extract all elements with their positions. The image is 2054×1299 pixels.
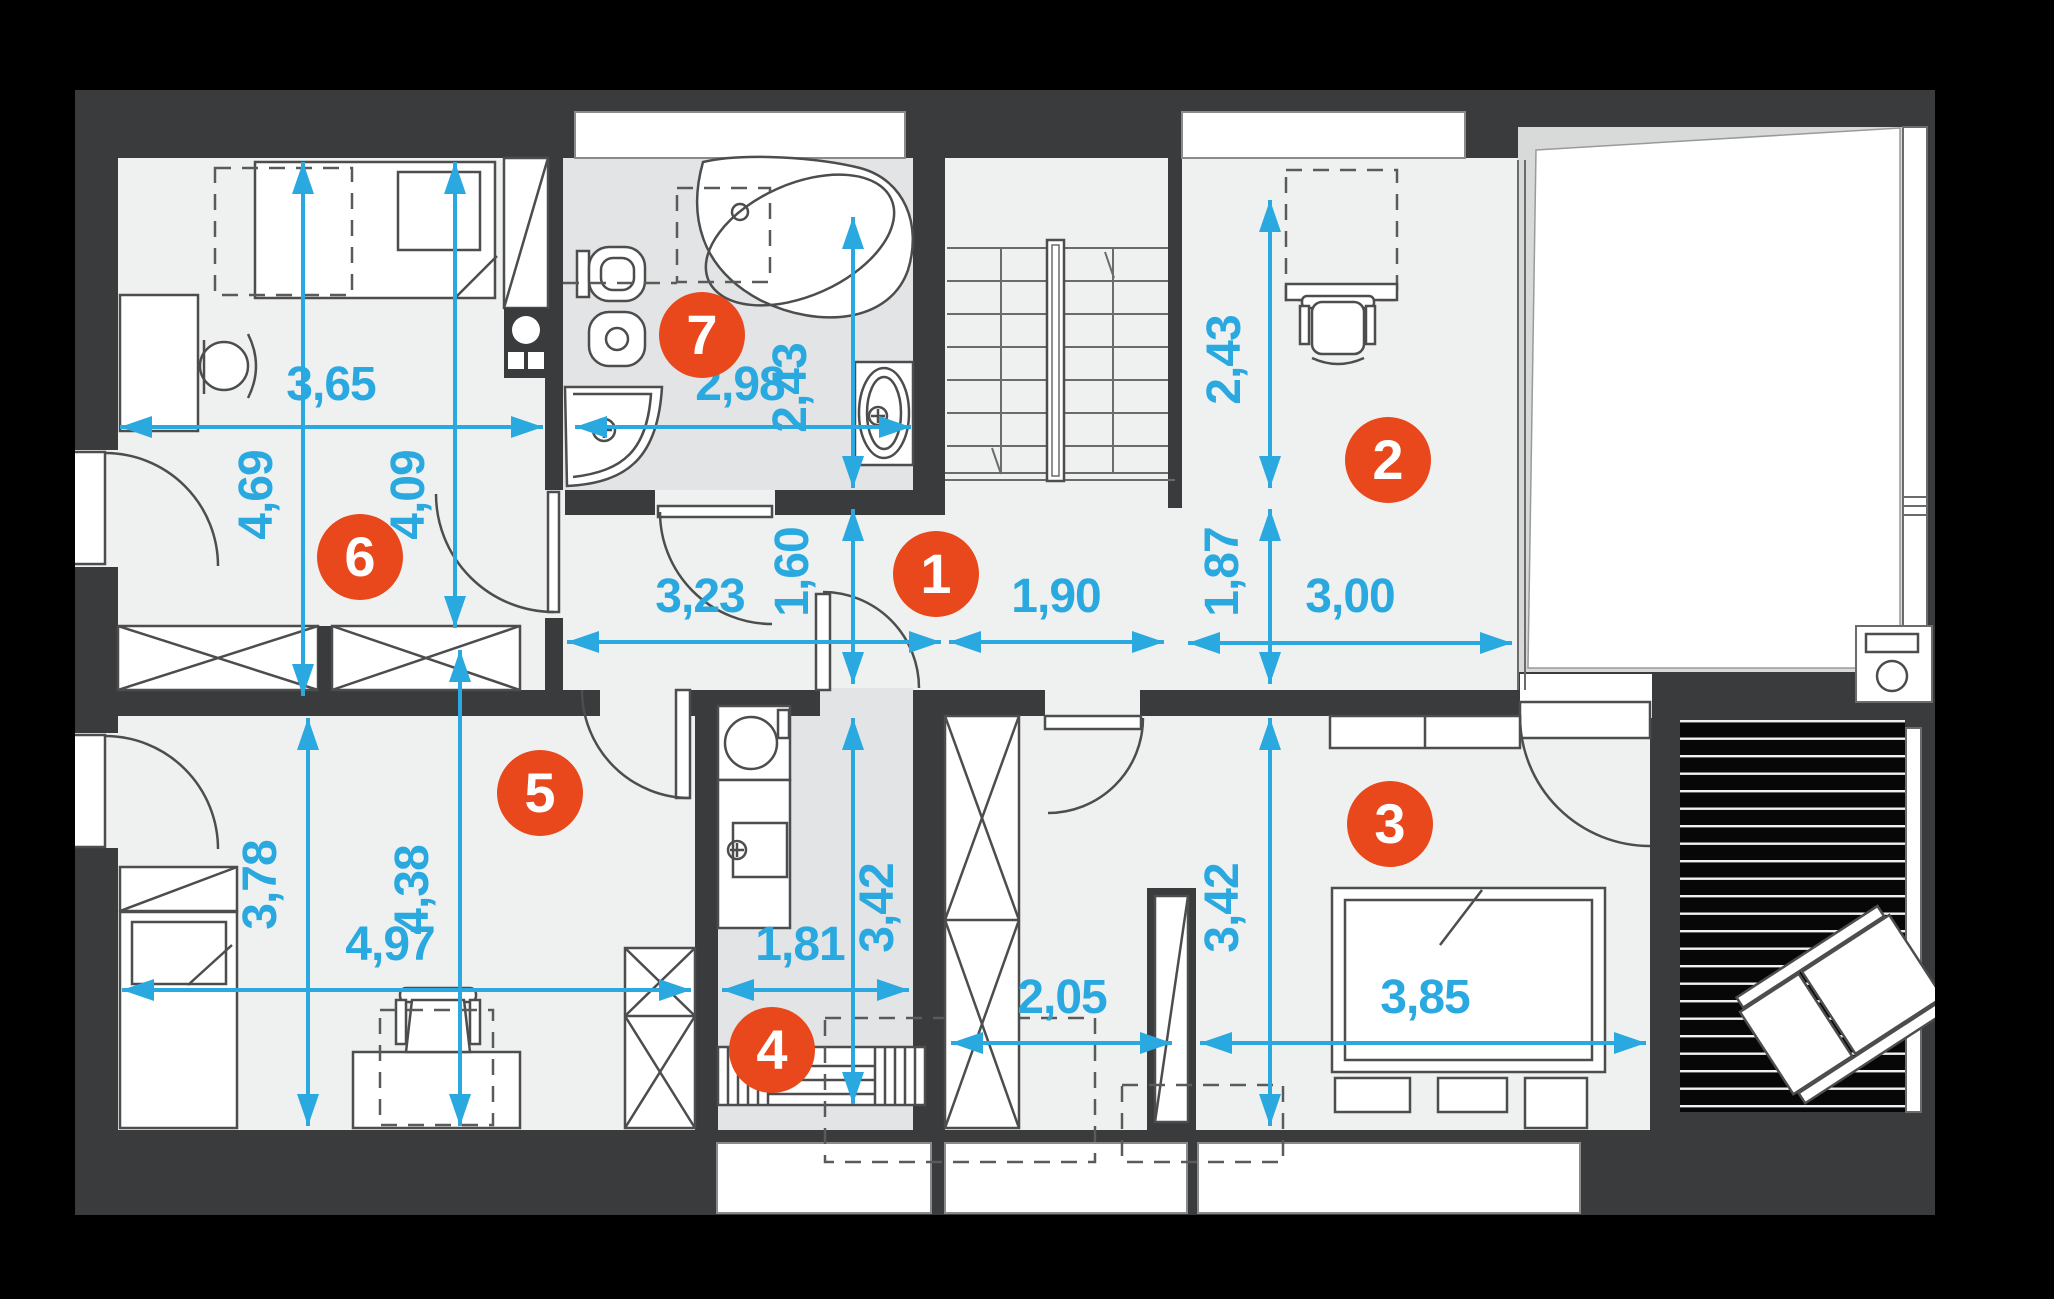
dimension-label: 2,43 [764,343,817,432]
dimension-label: 3,42 [851,863,904,952]
dimension-label: 1,60 [766,527,819,616]
sliding-door-icon [1155,896,1188,1122]
room4-door-opening [820,688,913,716]
dimension-label: 3,23 [655,570,744,623]
wardrobe-icon [625,948,695,1128]
wardrobe-icon [118,626,318,690]
room-badge-4: 4 [729,1007,815,1093]
page-margin-right [1935,0,2054,1299]
room2-window [1182,112,1465,158]
bathroom-window [575,112,905,158]
washbasin-icon [855,362,913,465]
nightstand-icon [1438,1078,1507,1112]
chair-icon [396,988,480,1052]
dimension-label: 1,81 [755,918,845,971]
railing-right-terrace [1906,728,1921,1112]
page-margin-top [0,0,2054,90]
nightstand-icon [1525,1078,1587,1128]
floor-plan-page: 3,65 2,98 3,23 1,90 3,00 4,97 1,81 2,05 … [0,0,2054,1299]
flue-icon [512,316,540,344]
wardrobe-icon [332,626,520,690]
corridor-bottom-window [945,1143,1187,1213]
nightstand-icon [1335,1078,1410,1112]
vent-icon [528,352,544,369]
room-badge-1: 1 [893,531,979,617]
room3-bottom-window [1198,1143,1580,1213]
dimension-label: 1,90 [1011,570,1100,623]
washbasin-shelf-icon [1866,634,1918,652]
room-number: 5 [524,761,555,824]
room-badge-5: 5 [497,750,583,836]
room2-opening [1166,508,1184,640]
room-badge-7: 7 [659,292,745,378]
wardrobe-icon [945,716,1019,1128]
page-margin-left [0,0,75,1299]
dimension-label: 1,87 [1196,527,1249,616]
room-badge-6: 6 [317,514,403,600]
room-number: 4 [756,1018,787,1081]
room-badge-2: 2 [1345,417,1431,503]
dimension-label: 3,42 [1196,863,1249,952]
dimension-label: 4,69 [230,450,283,539]
dimension-label: 4,38 [386,845,439,935]
dimension-label: 3,65 [286,358,376,411]
railing-right-upper [1903,127,1927,672]
toilet-icon [589,247,645,301]
room-number: 3 [1374,792,1405,855]
room-number: 7 [686,303,717,366]
bed-icon [255,162,495,298]
washbasin-bowl-icon [1877,661,1907,691]
dimension-label: 3,00 [1305,570,1394,623]
room4-bottom-window [717,1143,931,1213]
room-number: 1 [920,542,951,605]
dimension-label: 2,43 [1198,315,1251,404]
bidet-icon [589,312,645,366]
page-margin-bottom [0,1215,2054,1299]
floor-plan-drawing: 3,65 2,98 3,23 1,90 3,00 4,97 1,81 2,05 … [0,0,2054,1299]
room-number: 6 [344,525,375,588]
dimension-label: 2,05 [1017,971,1107,1024]
closet-door-opening [1045,688,1140,716]
closet-passage-floor [1147,716,1196,888]
dimension-label: 3,78 [234,840,287,930]
stair-stringer [1047,240,1064,481]
bed-icon [120,912,237,1128]
desk-icon [120,295,198,431]
room-number: 2 [1372,428,1403,491]
room-badge-3: 3 [1347,781,1433,867]
dimension-label: 3,85 [1380,971,1470,1024]
desk-icon [353,1052,520,1128]
roof-void-panel [1528,128,1900,668]
vent-icon [508,352,524,369]
